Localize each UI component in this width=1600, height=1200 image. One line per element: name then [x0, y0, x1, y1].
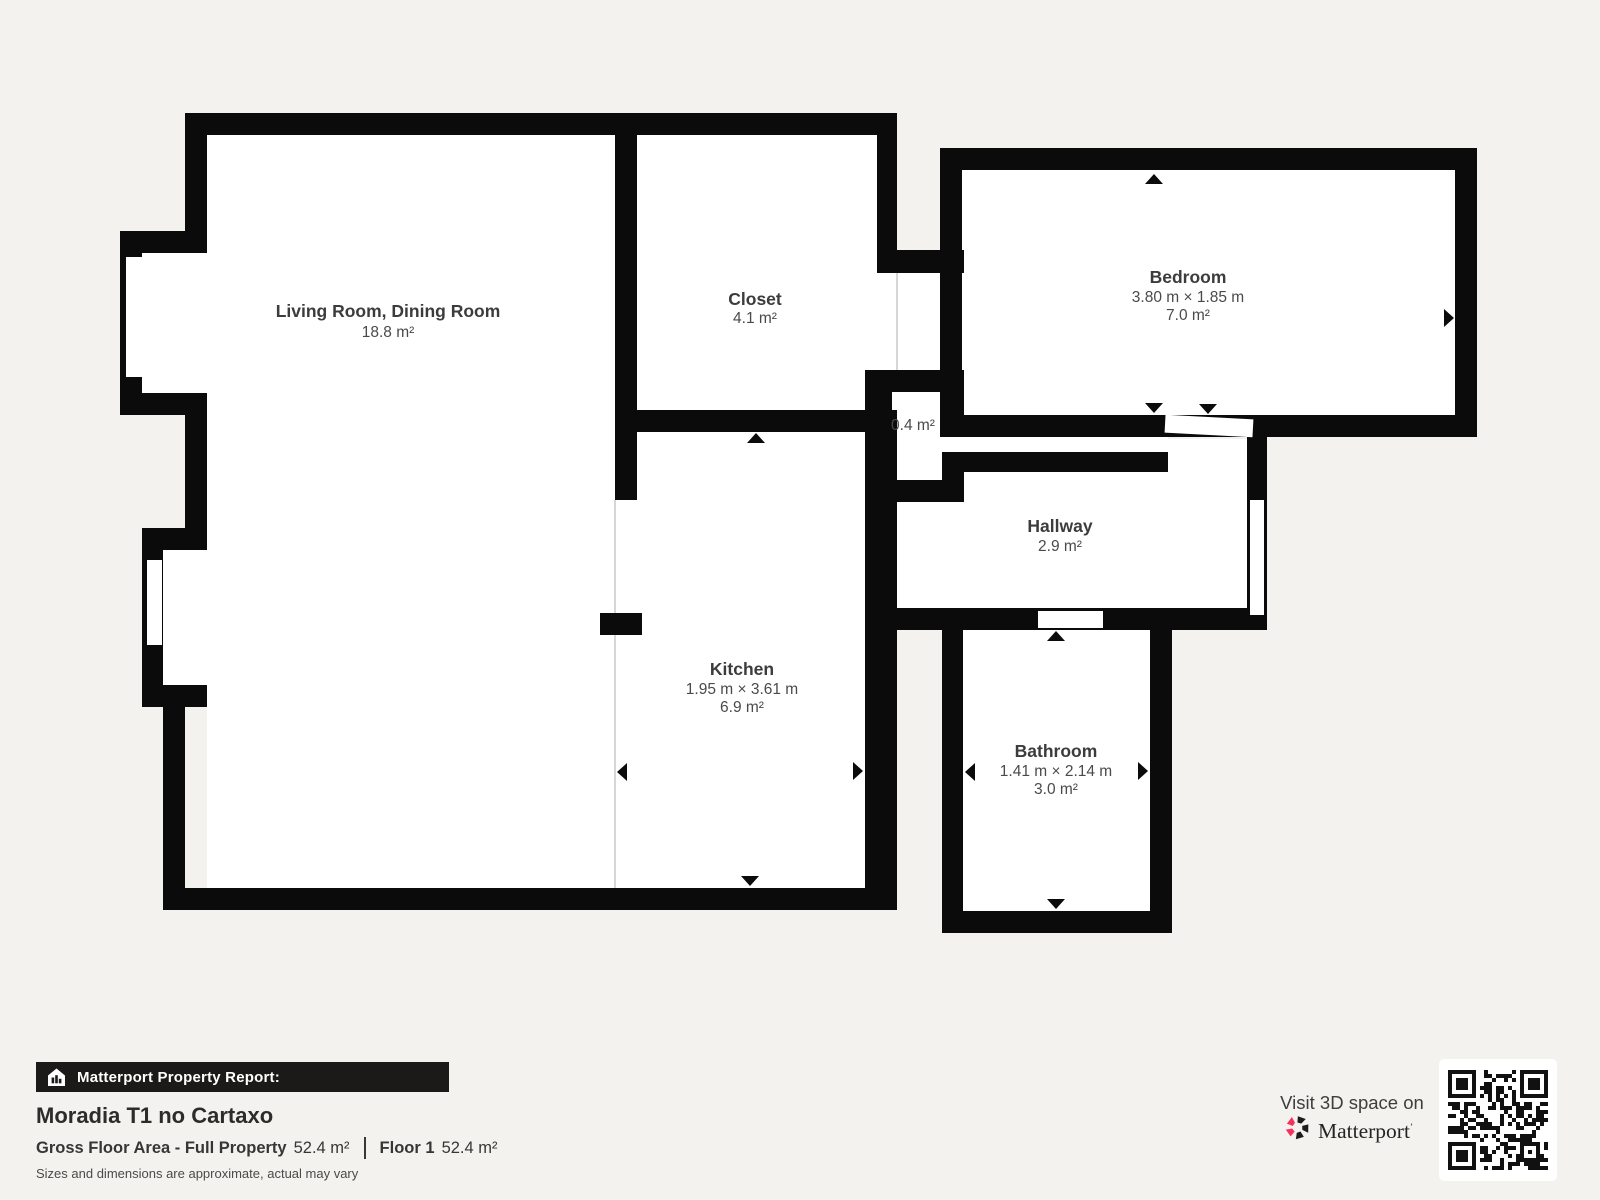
floorplan: Living Room, Dining Room18.8 m²Closet4.1…: [0, 0, 1600, 1200]
report-bar-label: Matterport Property Report:: [77, 1069, 280, 1086]
room-label-dimension: 18.8 m²: [362, 324, 415, 341]
living-room-window-2: [147, 560, 162, 645]
room-label-title: Hallway: [1027, 516, 1092, 536]
room-label-dimension: 2.9 m²: [1038, 538, 1082, 555]
room-label-title: Bedroom: [1150, 267, 1227, 287]
room-label-title: Bathroom: [1015, 741, 1098, 761]
room-living-room: [207, 135, 615, 888]
room-label-dimension: 4.1 m²: [733, 310, 777, 327]
floor-value: 52.4 m²: [442, 1139, 498, 1158]
matterport-wordmark: Matterport’: [1318, 1114, 1413, 1145]
property-report-page: Living Room, Dining Room18.8 m²Closet4.1…: [0, 0, 1600, 1200]
room-label-dimension: 1.95 m × 3.61 m: [686, 681, 798, 698]
living-room-window-1: [126, 257, 142, 377]
room-label-title: Living Room, Dining Room: [276, 301, 501, 321]
visit-3d-text: Visit 3D space on: [1272, 1092, 1432, 1114]
report-house-icon: [47, 1068, 66, 1087]
floor-label: Floor 1: [380, 1139, 435, 1158]
room-label-title: Closet: [728, 289, 782, 309]
property-title: Moradia T1 no Cartaxo: [36, 1103, 273, 1129]
room-label-dimension: 0.4 m²: [891, 417, 935, 434]
room-closet: [637, 135, 877, 410]
room-label-dimension: 3.80 m × 1.85 m: [1132, 289, 1244, 306]
room-label-dimension: 3.0 m²: [1034, 781, 1078, 798]
report-bar: Matterport Property Report:: [36, 1062, 449, 1092]
stats-divider: [364, 1137, 366, 1159]
disclaimer: Sizes and dimensions are approximate, ac…: [36, 1166, 358, 1181]
qr-code: [1439, 1059, 1557, 1181]
gfa-value: 52.4 m²: [294, 1139, 350, 1158]
room-label-dimension: 7.0 m²: [1166, 307, 1210, 324]
room-label-dimension: 6.9 m²: [720, 699, 764, 716]
room-small-closet: [892, 392, 942, 480]
bathroom-door-opening: [1038, 611, 1103, 628]
qr-code-pattern: [1448, 1070, 1548, 1170]
matterport-brand: Matterport’: [1284, 1114, 1413, 1145]
matterport-logo-icon: [1284, 1114, 1311, 1141]
room-closet-nook: [877, 273, 940, 370]
room-living-room-bay-1: [142, 253, 207, 393]
room-living-room-bay-2: [163, 550, 207, 685]
gfa-label: Gross Floor Area - Full Property: [36, 1139, 287, 1158]
room-label-closet: Closet4.1 m²: [728, 289, 782, 327]
room-label-title: Kitchen: [710, 659, 774, 679]
room-label-small-closet: 0.4 m²: [891, 417, 935, 434]
hallway-entry-opening: [1250, 500, 1264, 615]
floor-stats: Gross Floor Area - Full Property 52.4 m²…: [36, 1137, 498, 1159]
room-label-dimension: 1.41 m × 2.14 m: [1000, 763, 1112, 780]
corridor-passage: [942, 437, 1168, 452]
